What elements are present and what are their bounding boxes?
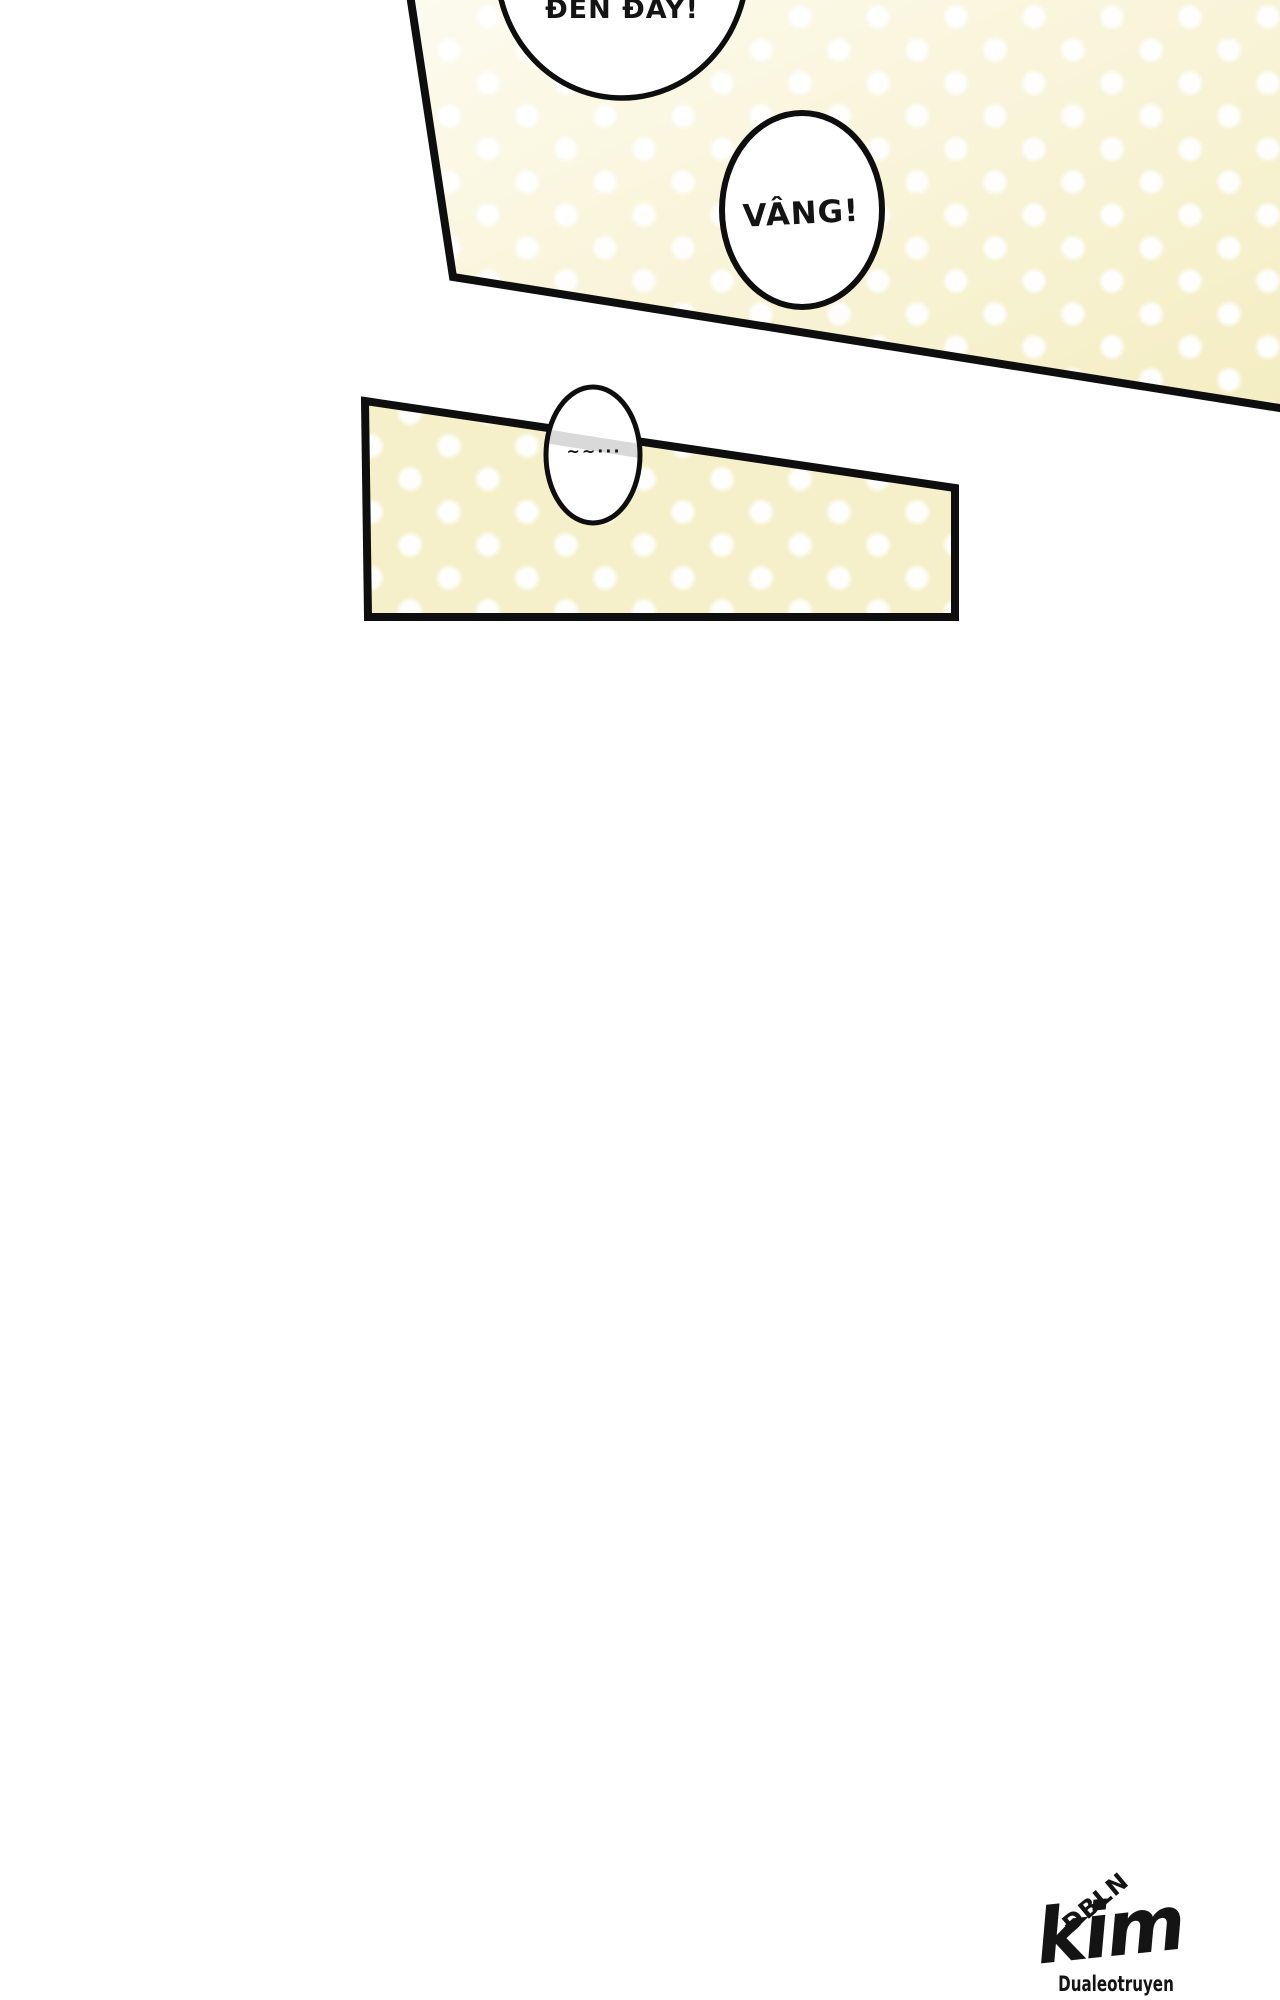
panel-2-polkadots	[365, 401, 955, 617]
bubble-text-den-day: ĐẾN ĐÂY!	[545, 0, 699, 24]
panel-2	[365, 401, 955, 617]
comic-art-layer	[0, 0, 1280, 2000]
watermark-kim: kim	[1032, 1883, 1186, 1978]
watermark-dualeotruyen: Dualeotruyen	[1058, 1973, 1174, 1995]
bubble-text-murmur: ~~···	[566, 444, 621, 461]
comic-page: ĐẾN ĐÂY! VÂNG! ~~··· ĐBLN kim Dualeotruy…	[0, 0, 1280, 2000]
bubble-text-vang: VÂNG!	[742, 195, 860, 234]
